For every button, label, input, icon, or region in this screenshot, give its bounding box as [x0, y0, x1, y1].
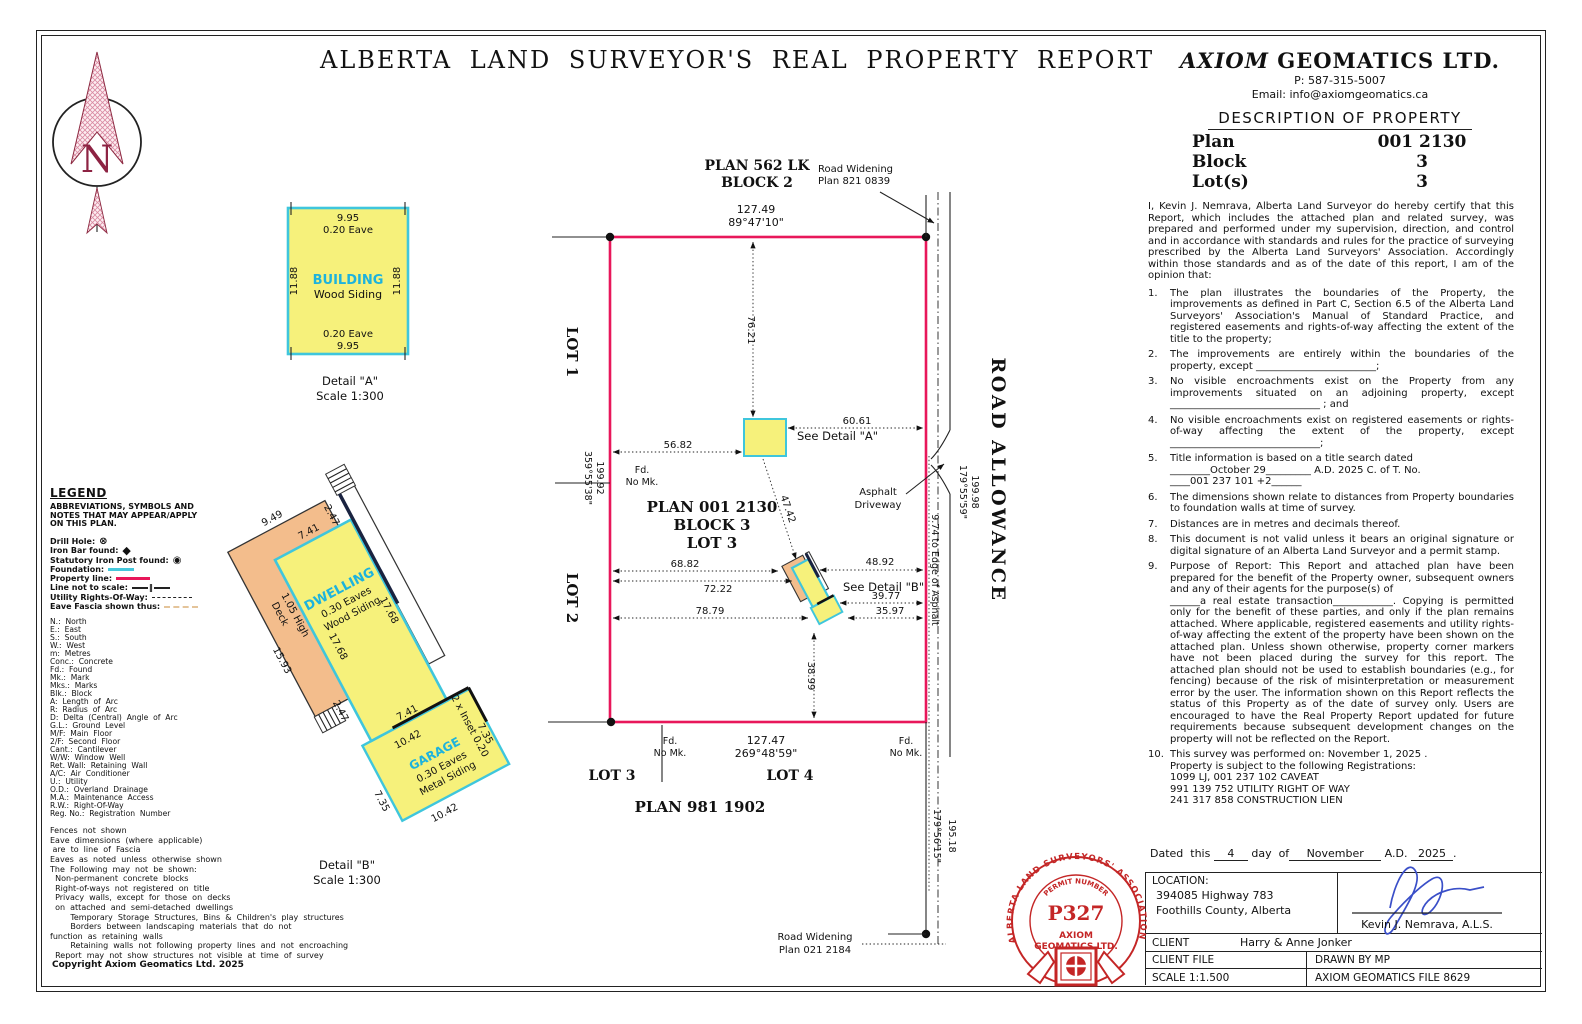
svg-text:PLAN 001 2130: PLAN 001 2130 — [647, 498, 778, 516]
svg-text:See Detail "A": See Detail "A" — [797, 429, 878, 443]
svg-text:0.20 Eave: 0.20 Eave — [323, 225, 373, 236]
svg-text:179°56'15": 179°56'15" — [931, 809, 942, 863]
svg-text:11.88: 11.88 — [392, 267, 403, 296]
svg-text:Fd.: Fd. — [899, 736, 914, 747]
svg-text:10.42: 10.42 — [430, 802, 460, 825]
svg-text:Plan 821 0839: Plan 821 0839 — [818, 176, 890, 187]
svg-text:AXIOM: AXIOM — [1059, 931, 1093, 941]
svg-text:359°55'38": 359°55'38" — [582, 451, 593, 505]
svg-text:BLOCK 2: BLOCK 2 — [721, 175, 793, 191]
svg-text:199.92: 199.92 — [594, 461, 605, 494]
detail-a-dim: 9.95 — [337, 213, 359, 224]
svg-text:Wood Siding: Wood Siding — [314, 288, 382, 301]
svg-text:179°55'59": 179°55'59" — [957, 465, 968, 519]
svg-text:Road Widening: Road Widening — [777, 932, 852, 943]
svg-text:PERMIT NUMBER: PERMIT NUMBER — [1042, 877, 1110, 898]
svg-text:60.61: 60.61 — [843, 416, 872, 427]
svg-text:BLOCK 3: BLOCK 3 — [674, 516, 751, 534]
svg-text:See Detail "B": See Detail "B" — [843, 580, 924, 594]
surveyor-stamp: ALBERTA LAND SURVEYORS' ASSOCIATION PERM… — [1006, 852, 1148, 985]
svg-text:Road Widening: Road Widening — [818, 164, 893, 175]
svg-text:Plan 021 2184: Plan 021 2184 — [779, 945, 851, 956]
detail-a: 9.95 0.20 Eave BUILDING Wood Siding 0.20… — [288, 202, 408, 403]
svg-text:PLAN 981 1902: PLAN 981 1902 — [635, 798, 766, 816]
svg-text:199.98: 199.98 — [969, 475, 980, 508]
svg-text:LOT 3: LOT 3 — [687, 534, 737, 552]
svg-text:Scale 1:300: Scale 1:300 — [316, 389, 384, 403]
svg-text:Fd.: Fd. — [635, 465, 650, 476]
plan-dwelling-mini — [782, 551, 843, 627]
svg-text:9.74 to Edge of Asphalt: 9.74 to Edge of Asphalt — [929, 514, 940, 626]
svg-text:72.22: 72.22 — [704, 584, 733, 595]
svg-text:48.92: 48.92 — [866, 557, 895, 568]
svg-text:No Mk.: No Mk. — [890, 748, 923, 759]
svg-text:76.21: 76.21 — [745, 316, 756, 345]
svg-text:127.47: 127.47 — [747, 734, 786, 747]
svg-text:Asphalt: Asphalt — [859, 487, 897, 498]
svg-text:47.42: 47.42 — [778, 494, 798, 525]
svg-text:56.82: 56.82 — [664, 440, 693, 451]
surveyor-name: Kevin J. Nemrava, A.L.S. — [1361, 918, 1493, 931]
svg-text:68.82: 68.82 — [671, 559, 700, 570]
svg-text:127.49: 127.49 — [737, 203, 776, 216]
plan-labels: PLAN 562 LK BLOCK 2 127.49 89°47'10" Roa… — [563, 158, 1009, 956]
svg-text:No Mk.: No Mk. — [654, 748, 687, 759]
svg-text:Scale 1:300: Scale 1:300 — [313, 873, 381, 887]
svg-text:78.79: 78.79 — [696, 606, 725, 617]
svg-text:35.97: 35.97 — [876, 606, 905, 617]
svg-text:38.99: 38.99 — [805, 662, 816, 691]
svg-text:269°48'59": 269°48'59" — [735, 747, 798, 760]
svg-text:LOT 3: LOT 3 — [588, 768, 635, 784]
svg-text:LOT 4: LOT 4 — [766, 768, 813, 784]
detail-b-caption: Detail "B" — [319, 858, 375, 872]
detail-a-caption: Detail "A" — [322, 374, 378, 388]
svg-text:No Mk.: No Mk. — [626, 477, 659, 488]
svg-text:PLAN 562 LK: PLAN 562 LK — [704, 158, 810, 174]
building-label: BUILDING — [313, 273, 384, 288]
svg-text:0.20 Eave: 0.20 Eave — [323, 329, 373, 340]
detail-b: 9.49 2.47 7.41 15.93 Deck 1.05 High 2.47… — [209, 462, 518, 855]
svg-text:Fd.: Fd. — [663, 736, 678, 747]
north-letter: N — [81, 138, 113, 181]
permit-number: P327 — [1048, 901, 1105, 925]
svg-text:89°47'10": 89°47'10" — [728, 216, 784, 229]
signature: Kevin J. Nemrava, A.L.S. — [1352, 867, 1502, 934]
svg-text:LOT 2: LOT 2 — [563, 573, 581, 623]
stamp-permit-label: PERMIT NUMBER — [1042, 877, 1110, 898]
svg-text:9.95: 9.95 — [337, 341, 359, 352]
svg-text:LOT 1: LOT 1 — [563, 327, 581, 377]
plan-building-mini — [744, 419, 786, 456]
survey-plan-drawing: N 9.95 0.20 Eave BUILDING Wood Siding 0.… — [0, 0, 1582, 1024]
svg-text:11.88: 11.88 — [289, 267, 300, 296]
north-arrow: N — [53, 52, 141, 233]
svg-text:ROAD ALLOWANCE: ROAD ALLOWANCE — [987, 357, 1009, 602]
svg-text:Driveway: Driveway — [855, 500, 902, 511]
svg-text:195.18: 195.18 — [946, 819, 957, 852]
